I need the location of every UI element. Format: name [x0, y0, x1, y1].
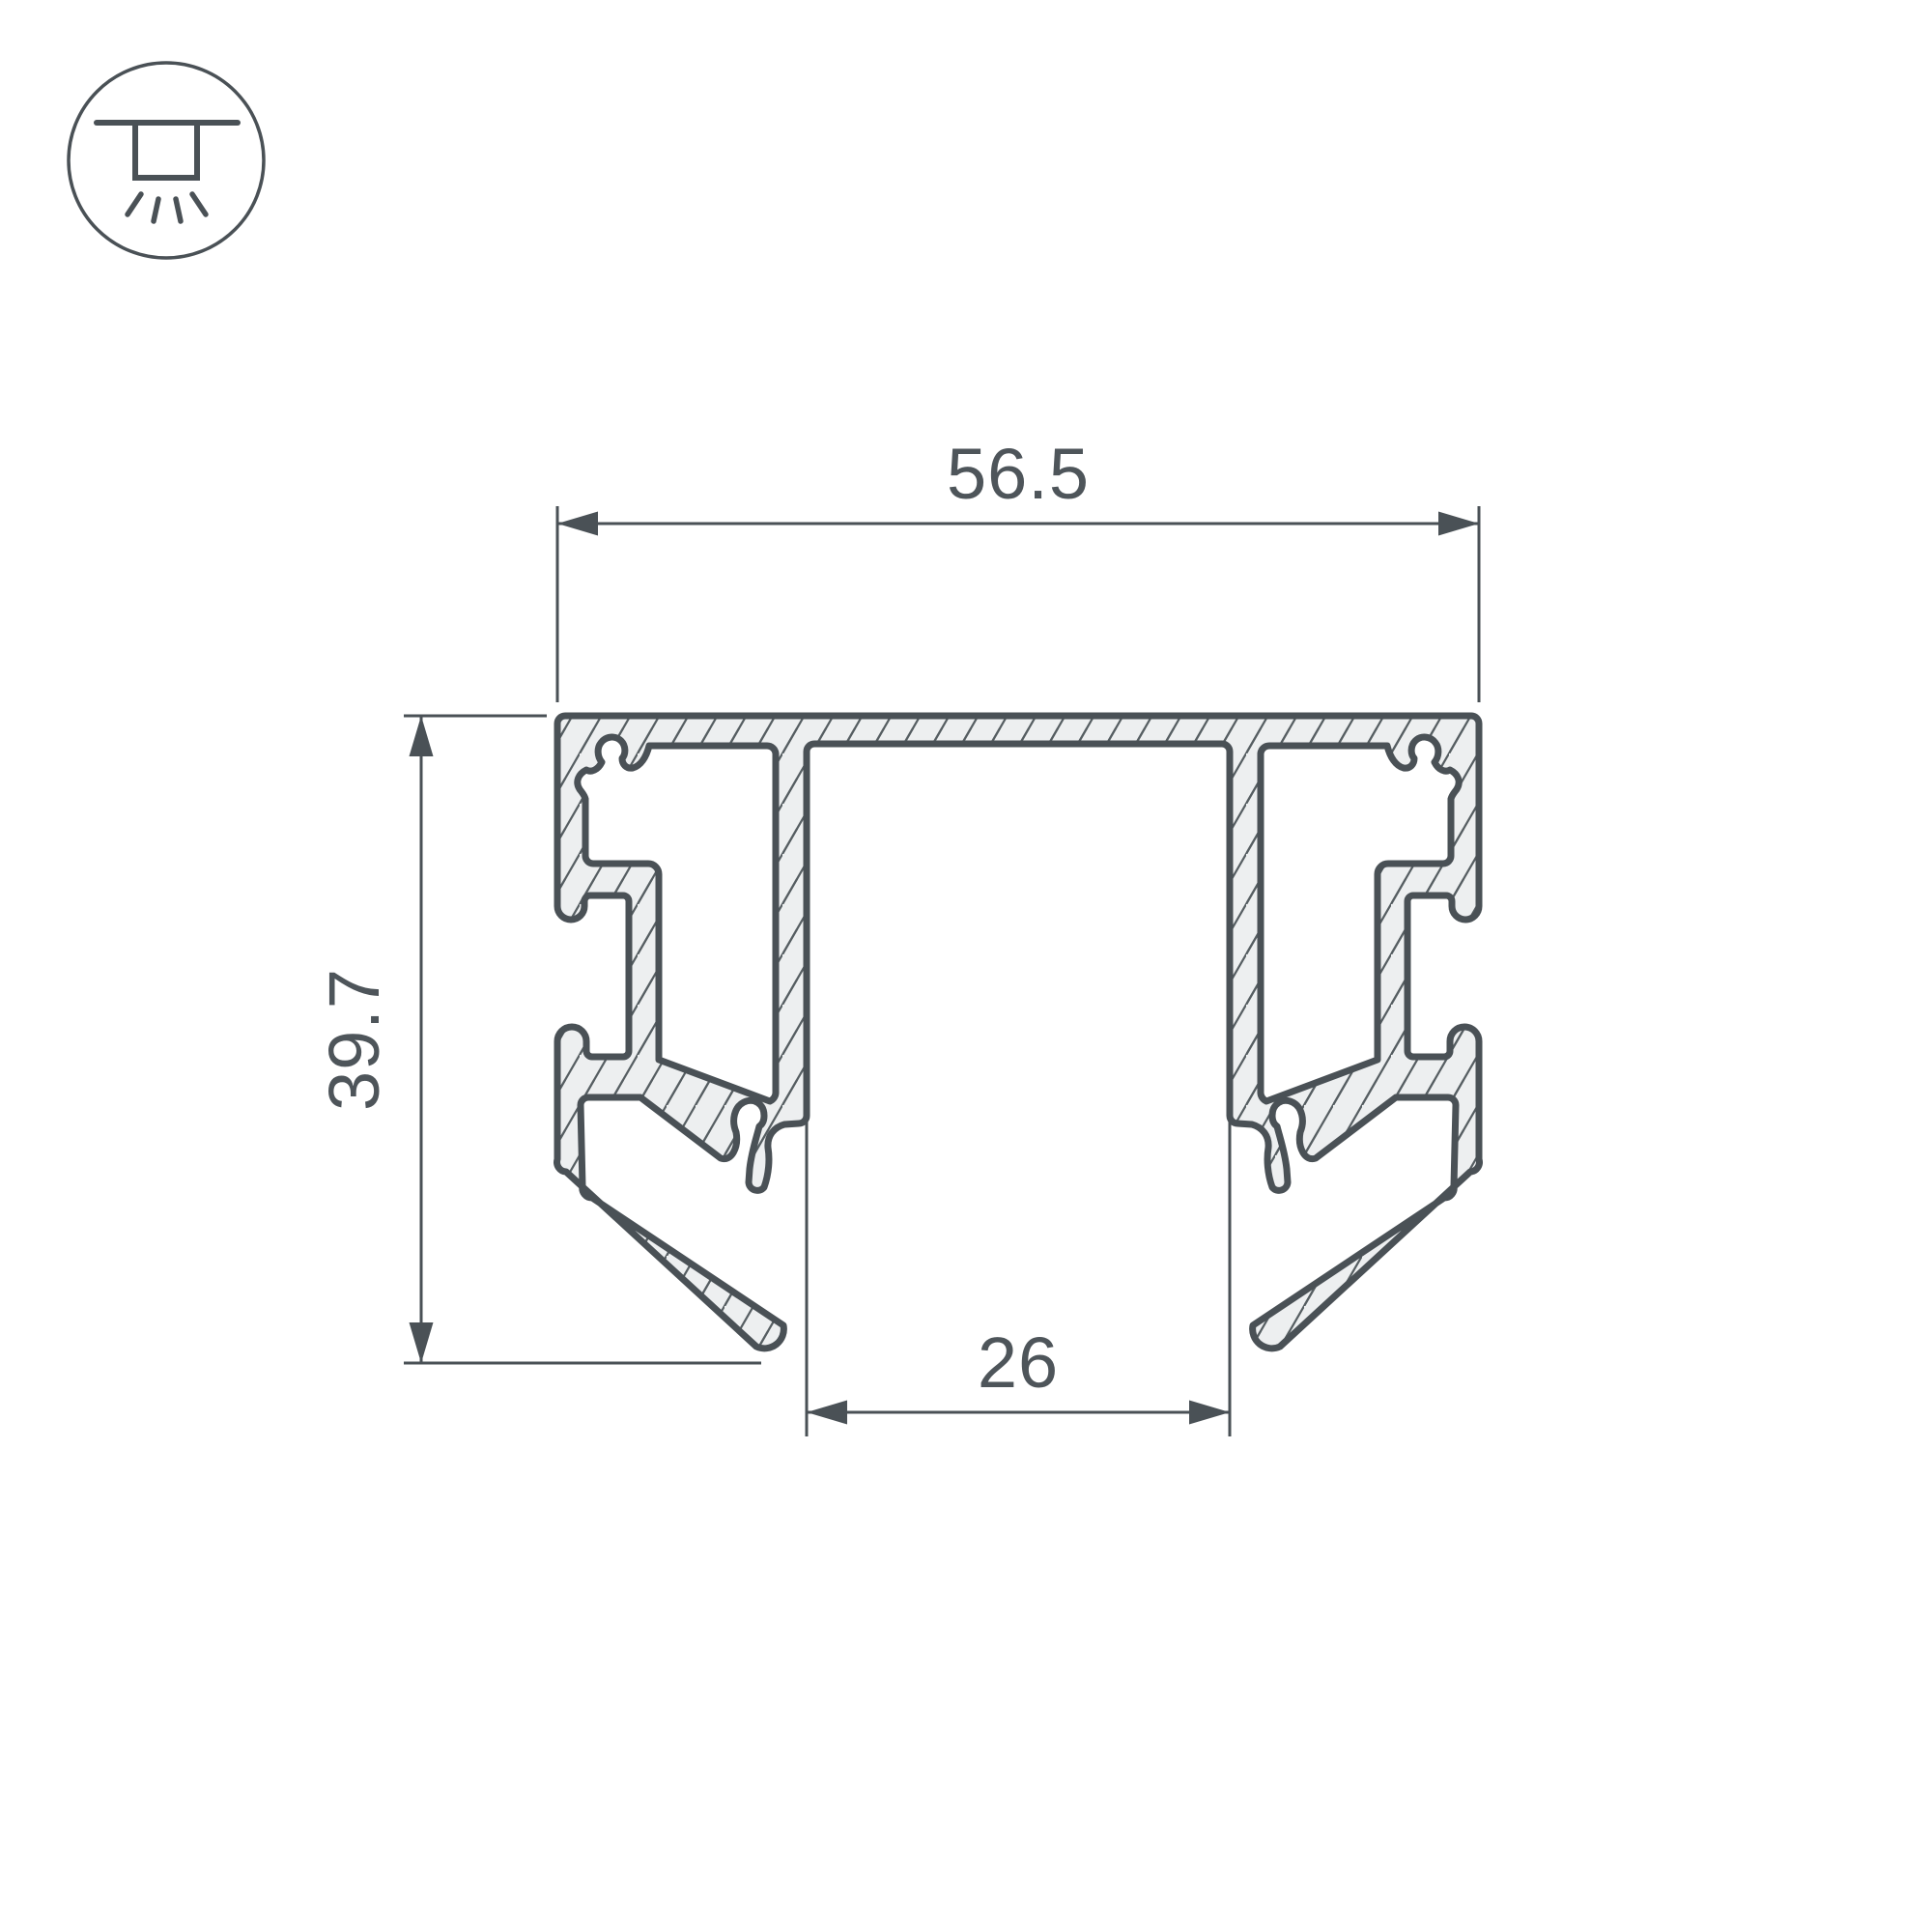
profile-chamber-left: [578, 737, 776, 1101]
dimension-label-top-width: 56.5: [947, 434, 1090, 514]
arrow-right-icon: [1189, 1401, 1230, 1425]
arrow-down-icon: [410, 1322, 434, 1363]
technical-drawing-svg: 56.5 39.7 26: [0, 0, 1932, 1932]
dimension-top-width: 56.5: [557, 434, 1479, 702]
technical-drawing-page: 56.5 39.7 26: [0, 0, 1932, 1932]
dimension-label-bottom-inner-width: 26: [978, 1322, 1059, 1403]
profile-cross-section: [557, 716, 1480, 1349]
icon-light-rays: [128, 194, 206, 221]
ceiling-recessed-light-icon: [69, 63, 264, 258]
dimension-bottom-inner-width: 26: [807, 1101, 1230, 1436]
dimension-label-left-height: 39.7: [314, 968, 394, 1111]
icon-circle: [69, 63, 264, 258]
profile-chamber-right: [1261, 737, 1459, 1101]
arrow-right-icon: [1438, 512, 1479, 536]
arrow-up-icon: [410, 716, 434, 756]
arrow-left-icon: [557, 512, 598, 536]
icon-fixture-box: [135, 123, 197, 178]
arrow-left-icon: [807, 1401, 847, 1425]
extension-lines: [557, 506, 1479, 702]
